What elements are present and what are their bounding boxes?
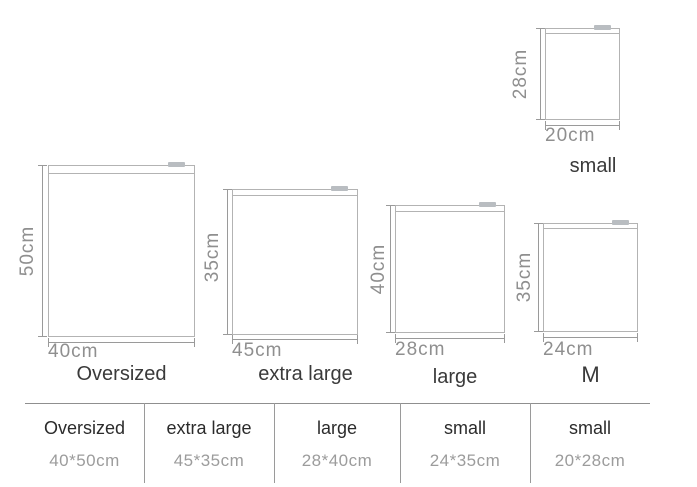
height-dim-label-small: 28cm bbox=[510, 42, 532, 106]
height-dim-label-m: 35cm bbox=[514, 245, 536, 309]
table-name-cell: small bbox=[530, 416, 650, 440]
zipper-slider-icon bbox=[479, 202, 496, 207]
table-top-border bbox=[25, 403, 650, 404]
table-name-cell: extra large bbox=[144, 416, 274, 440]
height-dim-line-oversized bbox=[38, 165, 47, 337]
zipper-slider-icon bbox=[168, 162, 185, 167]
bag-name-m: M bbox=[543, 362, 638, 388]
table-name-cell: Oversized bbox=[25, 416, 144, 440]
bag-outline-small bbox=[545, 28, 620, 120]
height-dim-line-small bbox=[536, 28, 545, 120]
width-dim-label-small: 20cm bbox=[545, 125, 595, 147]
table-size-cell: 24*35cm bbox=[400, 450, 530, 472]
bag-name-extra-large: extra large bbox=[228, 363, 383, 386]
width-dim-label-m: 24cm bbox=[543, 339, 593, 361]
height-dim-label-oversized: 50cm bbox=[17, 219, 39, 283]
seal-line bbox=[546, 33, 619, 34]
bag-outline-large bbox=[395, 205, 505, 333]
table-name-cell: large bbox=[274, 416, 400, 440]
bag-name-small: small bbox=[543, 155, 643, 178]
table-size-cell: 28*40cm bbox=[274, 450, 400, 472]
table-name-cell: small bbox=[400, 416, 530, 440]
bag-outline-extra-large bbox=[232, 189, 358, 335]
bag-name-large: large bbox=[395, 366, 515, 389]
bag-outline-oversized bbox=[48, 165, 195, 337]
table-size-cell: 45*35cm bbox=[144, 450, 274, 472]
zipper-slider-icon bbox=[331, 186, 348, 191]
seal-line bbox=[49, 173, 194, 174]
zipper-slider-icon bbox=[594, 25, 611, 30]
table-size-cell: 20*28cm bbox=[530, 450, 650, 472]
bag-name-oversized: Oversized bbox=[48, 363, 195, 386]
table-size-cell: 40*50cm bbox=[25, 450, 144, 472]
zipper-slider-icon bbox=[612, 220, 629, 225]
height-dim-label-large: 40cm bbox=[368, 237, 390, 301]
height-dim-line-extra-large bbox=[223, 189, 232, 335]
seal-line bbox=[544, 228, 637, 229]
size-chart-figure: 28cm 20cm small 50cm 40cm Oversized 35cm… bbox=[0, 0, 697, 487]
seal-line bbox=[396, 211, 504, 212]
bag-outline-m bbox=[543, 223, 638, 332]
width-dim-label-oversized: 40cm bbox=[48, 341, 98, 363]
seal-line bbox=[233, 195, 357, 196]
width-dim-label-extra-large: 45cm bbox=[232, 340, 282, 362]
width-dim-label-large: 28cm bbox=[395, 339, 445, 361]
height-dim-label-extra-large: 35cm bbox=[202, 225, 224, 289]
